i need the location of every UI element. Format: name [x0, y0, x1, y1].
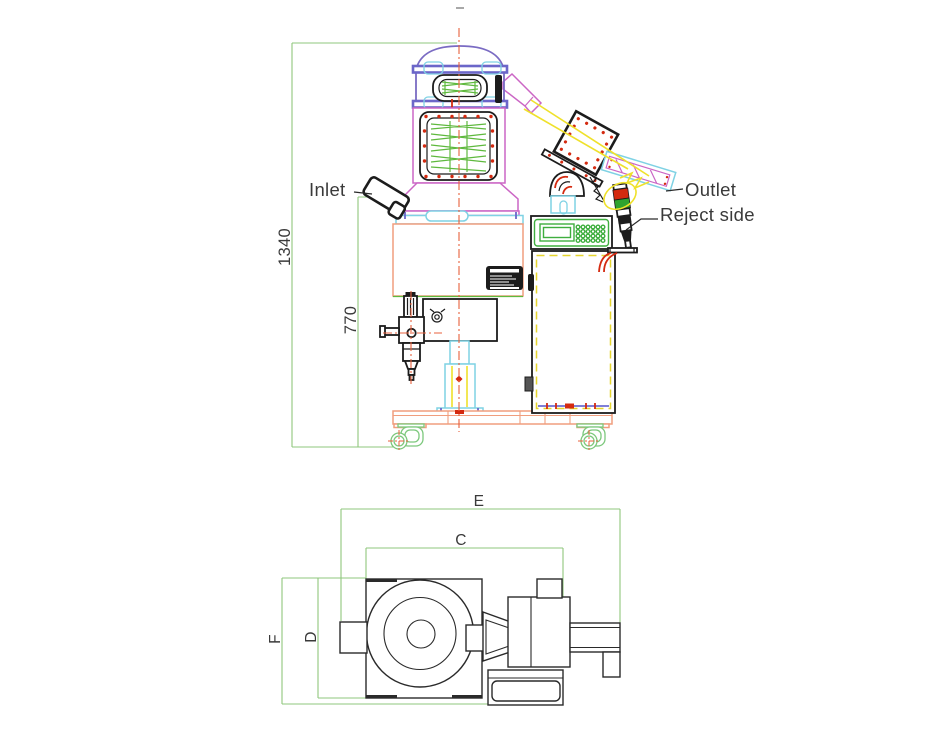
gearbox: [423, 299, 497, 341]
outlet-label: Outlet: [685, 179, 736, 200]
plan-body: [340, 579, 492, 698]
dim-c-label: C: [455, 532, 467, 549]
plan-left-trunnion: [340, 622, 367, 653]
plan-bottom-box: [488, 670, 563, 705]
plan-right-arm: [570, 623, 620, 677]
inlet-label: Inlet: [309, 179, 345, 200]
plan-view-drawing: [340, 579, 620, 705]
dim-1340-label: 1340: [276, 228, 294, 266]
cad-drawing-page: Inlet Outlet Reject side 1340 770 E C F …: [0, 0, 945, 750]
plan-coil-housing-circle: [367, 580, 474, 687]
control-panel: [531, 216, 612, 249]
detector-dome: [413, 46, 507, 111]
inlet-chute: [360, 176, 411, 220]
machine-body: [393, 224, 523, 297]
technical-drawing: Inlet Outlet Reject side 1340 770 E C F …: [0, 0, 945, 750]
dim-770-label: 770: [342, 306, 360, 334]
air-filter-regulator: [380, 292, 424, 380]
reject-side-label: Reject side: [660, 204, 755, 225]
side-latch: [495, 75, 502, 103]
vibrator-stand: [551, 196, 575, 213]
upper-coil-window: [433, 75, 487, 101]
vibrator-motor: [550, 172, 584, 214]
dim-f-label: F: [267, 634, 284, 644]
upper-transfer-chute: [503, 74, 541, 113]
dim-d-label: D: [303, 631, 320, 643]
side-view-drawing: [360, 28, 676, 452]
door-hinge: [525, 377, 533, 391]
nameplate: [486, 266, 523, 290]
plan-drive-block: [508, 579, 570, 667]
tower-light-flange: [608, 248, 637, 253]
pedestal: [437, 341, 483, 414]
dim-e-label: E: [474, 493, 485, 510]
door-handle: [528, 274, 534, 291]
control-cabinet: [525, 251, 615, 413]
reject-box: [542, 107, 626, 187]
